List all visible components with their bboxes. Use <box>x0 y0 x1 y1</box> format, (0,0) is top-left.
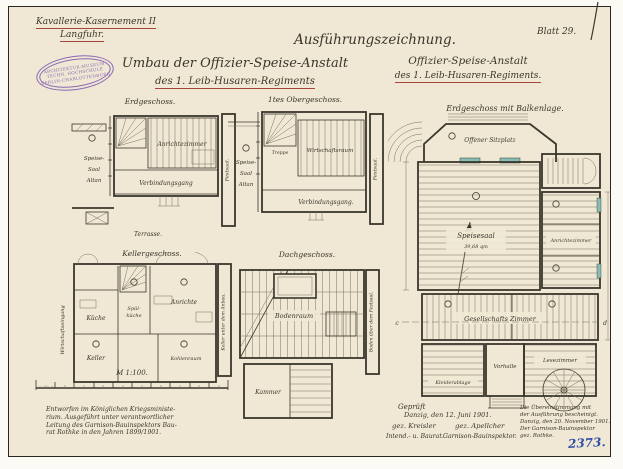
stair-icon <box>542 154 600 188</box>
left-note-line4: rat Rothke in den Jahren 1899/1901. <box>46 429 177 437</box>
left-note-line2: rium. Ausgeführt unter verantwortlicher <box>46 414 177 422</box>
room-label-altan: Altan <box>86 178 102 184</box>
room-label-anrichte: Anrichte <box>170 299 198 306</box>
handwritten-mark <box>583 0 605 42</box>
room-label-treppe: Treppe <box>272 150 289 156</box>
room-label-sitzplatz: Offener Sitzplatz <box>464 137 516 144</box>
label-keller-anbau: Keller unter dem Anbau. <box>221 293 227 352</box>
fan-steps <box>388 122 422 162</box>
right-note-line4: Der Garnison-Bauinspektor <box>520 426 610 433</box>
doc-type: Ausführungszeichnung. <box>290 32 460 48</box>
room-label-anrichtezimmer: Anrichtezimmer <box>156 141 207 148</box>
room-label-kueche: Küche <box>86 315 106 322</box>
corner-line2: Langfuhr. <box>60 30 104 42</box>
label-boden-festsaal: Boden über dem Festsaal. <box>369 291 375 353</box>
label-wirtschaftseingang: Wirtschaftseingang <box>60 305 66 354</box>
corner-line1: Kavallerie-Kasernement II <box>36 17 156 29</box>
plan-erdgeschoss-drawing: Festsaal. Anrichtezimmer Verbindungsgang… <box>70 108 242 246</box>
sheet-number: Blatt 29. <box>537 27 576 37</box>
room-label-lesezimmer: Lesezimmer <box>542 358 577 364</box>
right-note-line1: Die Übereinstimmung mit <box>520 405 610 412</box>
section-letter-c: c <box>395 320 399 327</box>
room-label-wirtschaftsraum: Wirtschaftsraum <box>307 148 354 154</box>
right-note-line2: der Ausführung bescheinigt. <box>520 412 610 419</box>
section-letter-d: d <box>603 320 607 327</box>
right-note-line3: Danzig, den 20. November 1901. <box>520 419 610 426</box>
plan-balkenlage-drawing: Offener Sitzplatz Speisesaal 39,68 qm An… <box>388 96 614 416</box>
title-left-line1: Umbau der Offizier-Speise-Anstalt <box>105 56 365 71</box>
room-label-spuel2: küche <box>126 313 141 319</box>
room-label-speise: Speise- <box>236 160 256 166</box>
room-label-kohlen: Kohlenraum <box>170 356 202 362</box>
check-heading: Geprüft <box>398 403 425 411</box>
room-label-altan: Altan <box>238 182 254 188</box>
title-left-line2: des 1. Leib-Husaren-Regiments <box>125 76 345 89</box>
stair-icon <box>116 118 146 148</box>
title-right-line2: des 1. Leib-Husaren-Regiments. <box>383 71 553 83</box>
room-label-saal: Saal <box>88 167 100 173</box>
room-area-speisesaal: 39,68 qm <box>464 244 488 250</box>
plan-obergeschoss-drawing: Festsaal. Treppe Wirtschaftsraum Verbind… <box>226 106 390 248</box>
room-label-gang: Verbindungsgang. <box>298 199 353 206</box>
room-label-spuel1: Spül- <box>127 306 140 312</box>
check-signature-2: gez. Apellcher <box>455 422 504 430</box>
room-label-speisesaal: Speisesaal <box>457 232 495 240</box>
scale-label: M 1:100. <box>98 369 166 377</box>
scale-bar <box>32 378 232 396</box>
plan-eg-title: Erdgeschoss. <box>88 97 212 106</box>
check-date: Danzig, den 12. Juni 1901. <box>404 411 491 419</box>
room-label-gang: Verbindungsgang <box>139 180 193 187</box>
room-label-festsaal: Festsaal. <box>373 157 379 181</box>
room-label-speise: Speise- <box>84 156 104 162</box>
check-signature-1: gez. Kreisler <box>392 422 436 430</box>
left-note: Entworfen im Königlichen Kriegsministe- … <box>46 406 177 437</box>
room-label-saal: Saal <box>240 171 252 177</box>
title-right-line1: Offizier-Speise-Anstalt <box>398 55 538 67</box>
room-label-vorhalle: Vorhalle <box>493 364 517 370</box>
left-note-line1: Entworfen im Königlichen Kriegsministe- <box>46 406 177 414</box>
room-label-kleiderablage: Kleiderablage <box>434 380 470 386</box>
plan-dachgeschoss-drawing: Boden über dem Festsaal. Bodenraum Kamme… <box>228 258 386 426</box>
room-label-anrichtezimmer: Anrichtezimmer <box>550 238 592 244</box>
check-role-1: Intend.- u. Baurat. <box>386 433 444 440</box>
left-note-line3: Leitung des Garnison-Bauinspektors Bau- <box>46 422 177 430</box>
room-label-terrasse: Terrasse. <box>134 231 162 238</box>
check-role-2: Garnison-Bauinspektor. <box>443 433 517 440</box>
ladder-icon <box>290 364 332 418</box>
room-label-keller: Keller <box>86 355 106 362</box>
room-label-bodenraum: Bodenraum <box>274 312 313 320</box>
stair-icon <box>264 114 296 146</box>
plan-og-title: 1tes Obergeschoss. <box>238 95 372 104</box>
inventory-number: 2373. <box>568 435 606 451</box>
room-label-kammer: Kammer <box>254 389 282 396</box>
